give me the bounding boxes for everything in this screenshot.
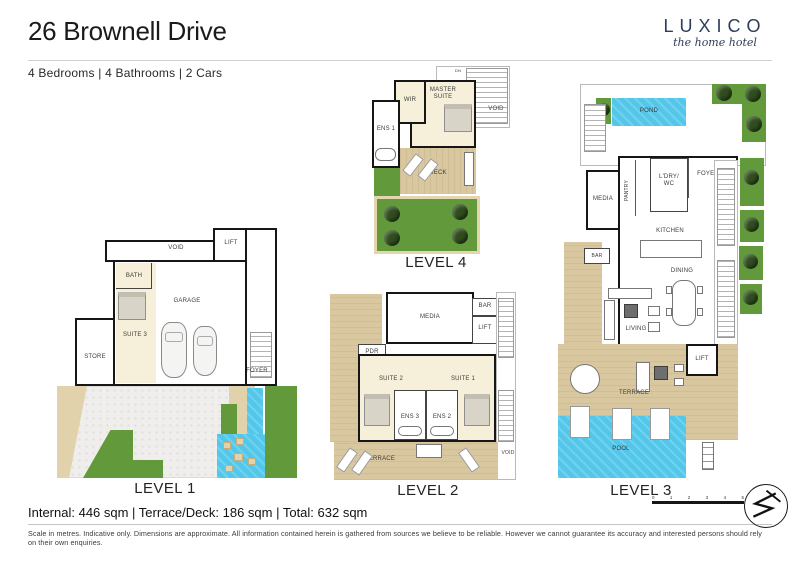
l3-round-table: [570, 364, 600, 394]
luxico-logo-name: LUXICO: [655, 16, 775, 37]
l2-suite2-bed: [364, 394, 390, 426]
l3-tree: [744, 170, 759, 185]
l4-bathtub: [375, 148, 396, 161]
area-summary: Internal: 446 sqm | Terrace/Deck: 186 sq…: [28, 505, 367, 520]
l4-ens1-label: ENS 1: [372, 126, 400, 133]
l3-coffee-table: [624, 304, 638, 318]
l3-shelf: [702, 442, 714, 470]
l1-stepping-stone: [223, 442, 231, 449]
l3-dining-table: [672, 280, 696, 326]
l2-terrace-table: [416, 444, 442, 458]
l2-ens2-label: ENS 2: [426, 414, 458, 421]
l1-stepping-stone: [234, 453, 243, 461]
footer-divider: [28, 524, 772, 525]
l2-suite1-bed: [464, 394, 490, 426]
scale-tick: 0: [652, 495, 655, 500]
l3-pool-lounger: [570, 406, 590, 438]
l2-ens3-label: ENS 3: [394, 414, 426, 421]
l3-kitchen-island: [640, 240, 702, 258]
l3-pantry-label: PANTRY: [624, 168, 630, 212]
l3-tree: [746, 116, 762, 132]
l2-void-label: VOID: [496, 450, 520, 456]
l2-stairs-upper: [498, 298, 514, 358]
l1-lawn-strip: [121, 460, 163, 478]
l3-terrace-table: [654, 366, 668, 380]
l1-stepping-stone: [236, 438, 244, 445]
l3-terrace-chair: [674, 364, 684, 372]
l3-pool-lounger: [650, 408, 670, 440]
architect-mark-logo: [744, 484, 788, 528]
property-meta: 4 Bedrooms | 4 Bathrooms | 2 Cars: [28, 66, 222, 80]
page-title: 26 Brownell Drive: [28, 16, 227, 47]
l4-tree: [452, 228, 468, 244]
l4-master-bed: [444, 104, 472, 132]
l4-dn-label: DN: [450, 69, 466, 74]
l1-lawn-right: [265, 386, 297, 478]
l3-pond-label: POND: [612, 108, 686, 115]
l3-dining-chair: [697, 308, 703, 316]
l3-armchair: [648, 306, 660, 316]
l3-tree: [745, 86, 761, 102]
floorplan-page: 26 Brownell Drive LUXICO the home hotel …: [0, 0, 800, 566]
l1-car-2-windshield: [197, 336, 213, 346]
l3-sofa: [604, 300, 615, 340]
l3-dining-chair: [666, 286, 672, 294]
l4-tree: [384, 230, 400, 246]
l4-tree: [452, 204, 468, 220]
l2-stairs-lower: [498, 390, 514, 442]
l3-media-label: MEDIA: [586, 196, 620, 203]
l3-pool-lounger: [612, 408, 632, 440]
l3-stairs-top: [584, 104, 606, 152]
l3-dining-label: DINING: [660, 268, 704, 275]
l4-deck-sofa: [464, 152, 474, 186]
l3-stairs-lower: [717, 260, 735, 338]
l1-lift-label: LIFT: [213, 240, 249, 247]
l3-sofa: [608, 288, 652, 299]
l2-bar-label: BAR: [472, 303, 498, 310]
l4-lawn-side: [374, 168, 400, 196]
level-3-plan: POND MEDIA PANTRY L'DRY/ WC FOYER KITCHE…: [556, 76, 774, 502]
scale-bar-numbers: 0 1 2 3 4 5: [652, 495, 744, 500]
l3-tree: [744, 217, 759, 232]
l1-car-2: [193, 326, 217, 376]
level-4-plan: DN VOID MASTER SUITE WIR ENS 1 DECK LEVE…: [370, 66, 516, 272]
l2-media-label: MEDIA: [386, 314, 474, 321]
l3-lift-label: LIFT: [686, 356, 718, 363]
l3-tree: [716, 85, 732, 101]
l2-suite1-label: SUITE 1: [438, 376, 488, 383]
scale-tick: 1: [670, 495, 673, 500]
l1-suite3-bed: [118, 292, 146, 320]
level-1-plan: VOID LIFT FOYER BATH SUITE 3 GARAGE STOR…: [57, 226, 297, 502]
level-2-label: LEVEL 2: [358, 482, 498, 499]
scale-bar-line: [652, 501, 744, 504]
disclaimer-text: Scale in metres. Indicative only. Dimens…: [28, 529, 772, 547]
l2-ens2-tub: [430, 426, 454, 436]
l1-garage-label: GARAGE: [157, 298, 217, 305]
level-1-label: LEVEL 1: [95, 480, 235, 497]
l3-stairs-upper: [717, 168, 735, 246]
l1-store-room: [75, 318, 115, 386]
header-divider: [28, 60, 772, 61]
l1-bath-label: BATH: [116, 273, 152, 280]
l4-void-label: VOID: [478, 106, 514, 113]
l1-water-strip: [247, 388, 263, 434]
scale-tick: 2: [688, 495, 691, 500]
luxico-logo: LUXICO the home hotel: [655, 16, 775, 49]
l1-car-1-windshield: [165, 332, 183, 342]
l3-tree: [743, 290, 758, 305]
l1-car-1: [161, 322, 187, 378]
lz-mark-icon: [745, 485, 786, 526]
l1-suite3-label: SUITE 3: [113, 332, 157, 339]
level-4-label: LEVEL 4: [370, 254, 502, 271]
l3-terrace-label: TERRACE: [604, 390, 664, 397]
l3-pool-label: POOL: [596, 446, 646, 453]
l3-laundry-wc-label: L'DRY/ WC: [650, 174, 688, 188]
l3-living-label: LIVING: [614, 326, 658, 333]
l2-suite2-label: SUITE 2: [366, 376, 416, 383]
l4-tree: [384, 206, 400, 222]
l3-terrace-bench: [636, 362, 650, 392]
l3-dining-chair: [697, 286, 703, 294]
l3-terrace-chair: [674, 378, 684, 386]
l2-ens3-tub: [398, 426, 422, 436]
scale-bar: 0 1 2 3 4 5: [652, 495, 744, 504]
l3-bar-label: BAR: [584, 253, 610, 259]
l3-tree: [743, 254, 758, 269]
l1-stepping-stone: [225, 465, 233, 472]
l1-lawn-small: [221, 404, 237, 434]
luxico-logo-tagline: the home hotel: [655, 36, 775, 49]
l1-store-label: STORE: [75, 354, 115, 361]
level-2-plan: MEDIA BAR LIFT PDR SUITE 2 SUITE 1 ENS 3…: [330, 290, 522, 502]
scale-tick: 5: [741, 495, 744, 500]
scale-tick: 4: [724, 495, 727, 500]
l3-dining-chair: [666, 308, 672, 316]
l3-kitchen-label: KITCHEN: [640, 228, 700, 235]
scale-tick: 3: [706, 495, 709, 500]
l2-lift-label: LIFT: [472, 325, 498, 332]
l1-stepping-stone: [248, 458, 256, 465]
